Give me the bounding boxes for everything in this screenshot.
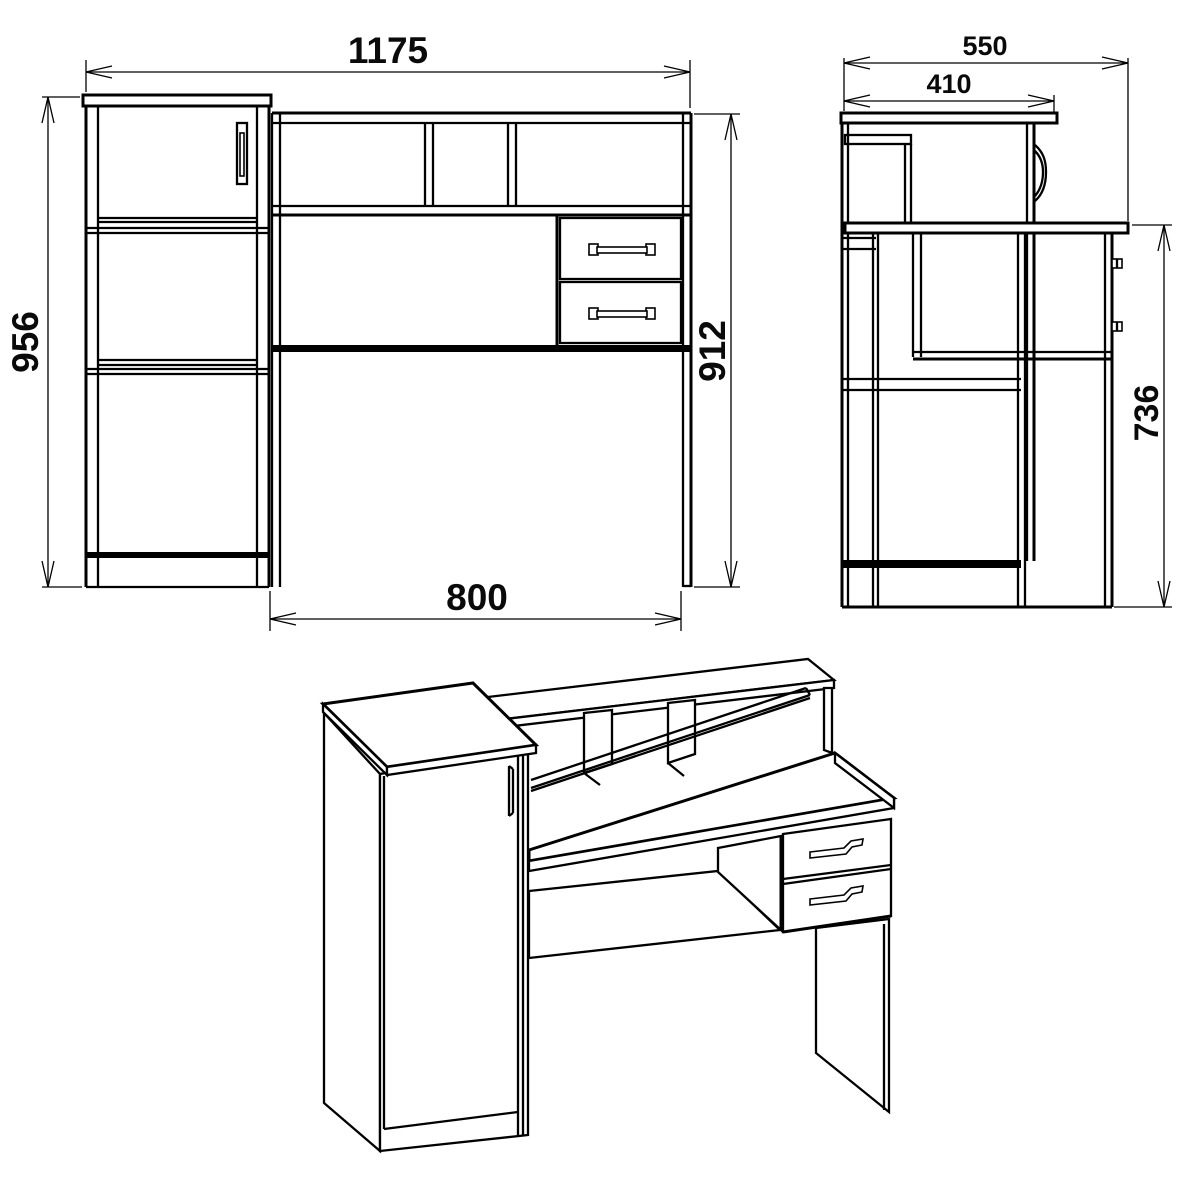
dim-label-desk-width: 800 [446, 577, 508, 618]
side-hutch-top-shelf [845, 135, 911, 144]
front-desk-body [272, 113, 691, 587]
dim-label-desktop-height: 736 [1128, 385, 1166, 442]
dim-cabinet-height: 956 [5, 97, 82, 587]
iso-hutch-right-support [824, 688, 832, 753]
dim-desk-height: 912 [692, 114, 740, 587]
desk-drawing: 1175 956 912 800 [0, 0, 1200, 1200]
dim-label-desk-height: 912 [692, 320, 733, 382]
side-pedestal-top [841, 113, 1057, 123]
dim-label-cabinet-depth: 410 [926, 69, 971, 99]
dim-cabinet-depth: 410 [844, 69, 1054, 112]
iso-right-side-panel [816, 919, 889, 1112]
pedestal-door-handle [237, 123, 247, 184]
blueprint-page: 1175 956 912 800 [0, 0, 1200, 1200]
dim-total-depth: 550 [844, 31, 1128, 221]
front-pedestal-cabinet [83, 95, 271, 587]
pedestal-top-panel [83, 95, 271, 106]
dim-label-total-width: 1175 [348, 30, 428, 71]
side-desktop [845, 223, 1128, 233]
dim-desk-width: 800 [270, 577, 681, 631]
front-view: 1175 956 912 800 [5, 30, 740, 631]
isometric-view [323, 659, 894, 1151]
dim-label-total-depth: 550 [962, 31, 1007, 61]
side-view: 550 410 736 [841, 31, 1172, 607]
iso-pedestal [323, 683, 536, 1151]
side-door-handle [1035, 145, 1046, 201]
dim-desktop-height: 736 [1114, 225, 1172, 607]
side-body [841, 113, 1128, 607]
iso-hutch-divider-2 [668, 700, 695, 763]
dim-label-cabinet-height: 956 [5, 311, 46, 373]
